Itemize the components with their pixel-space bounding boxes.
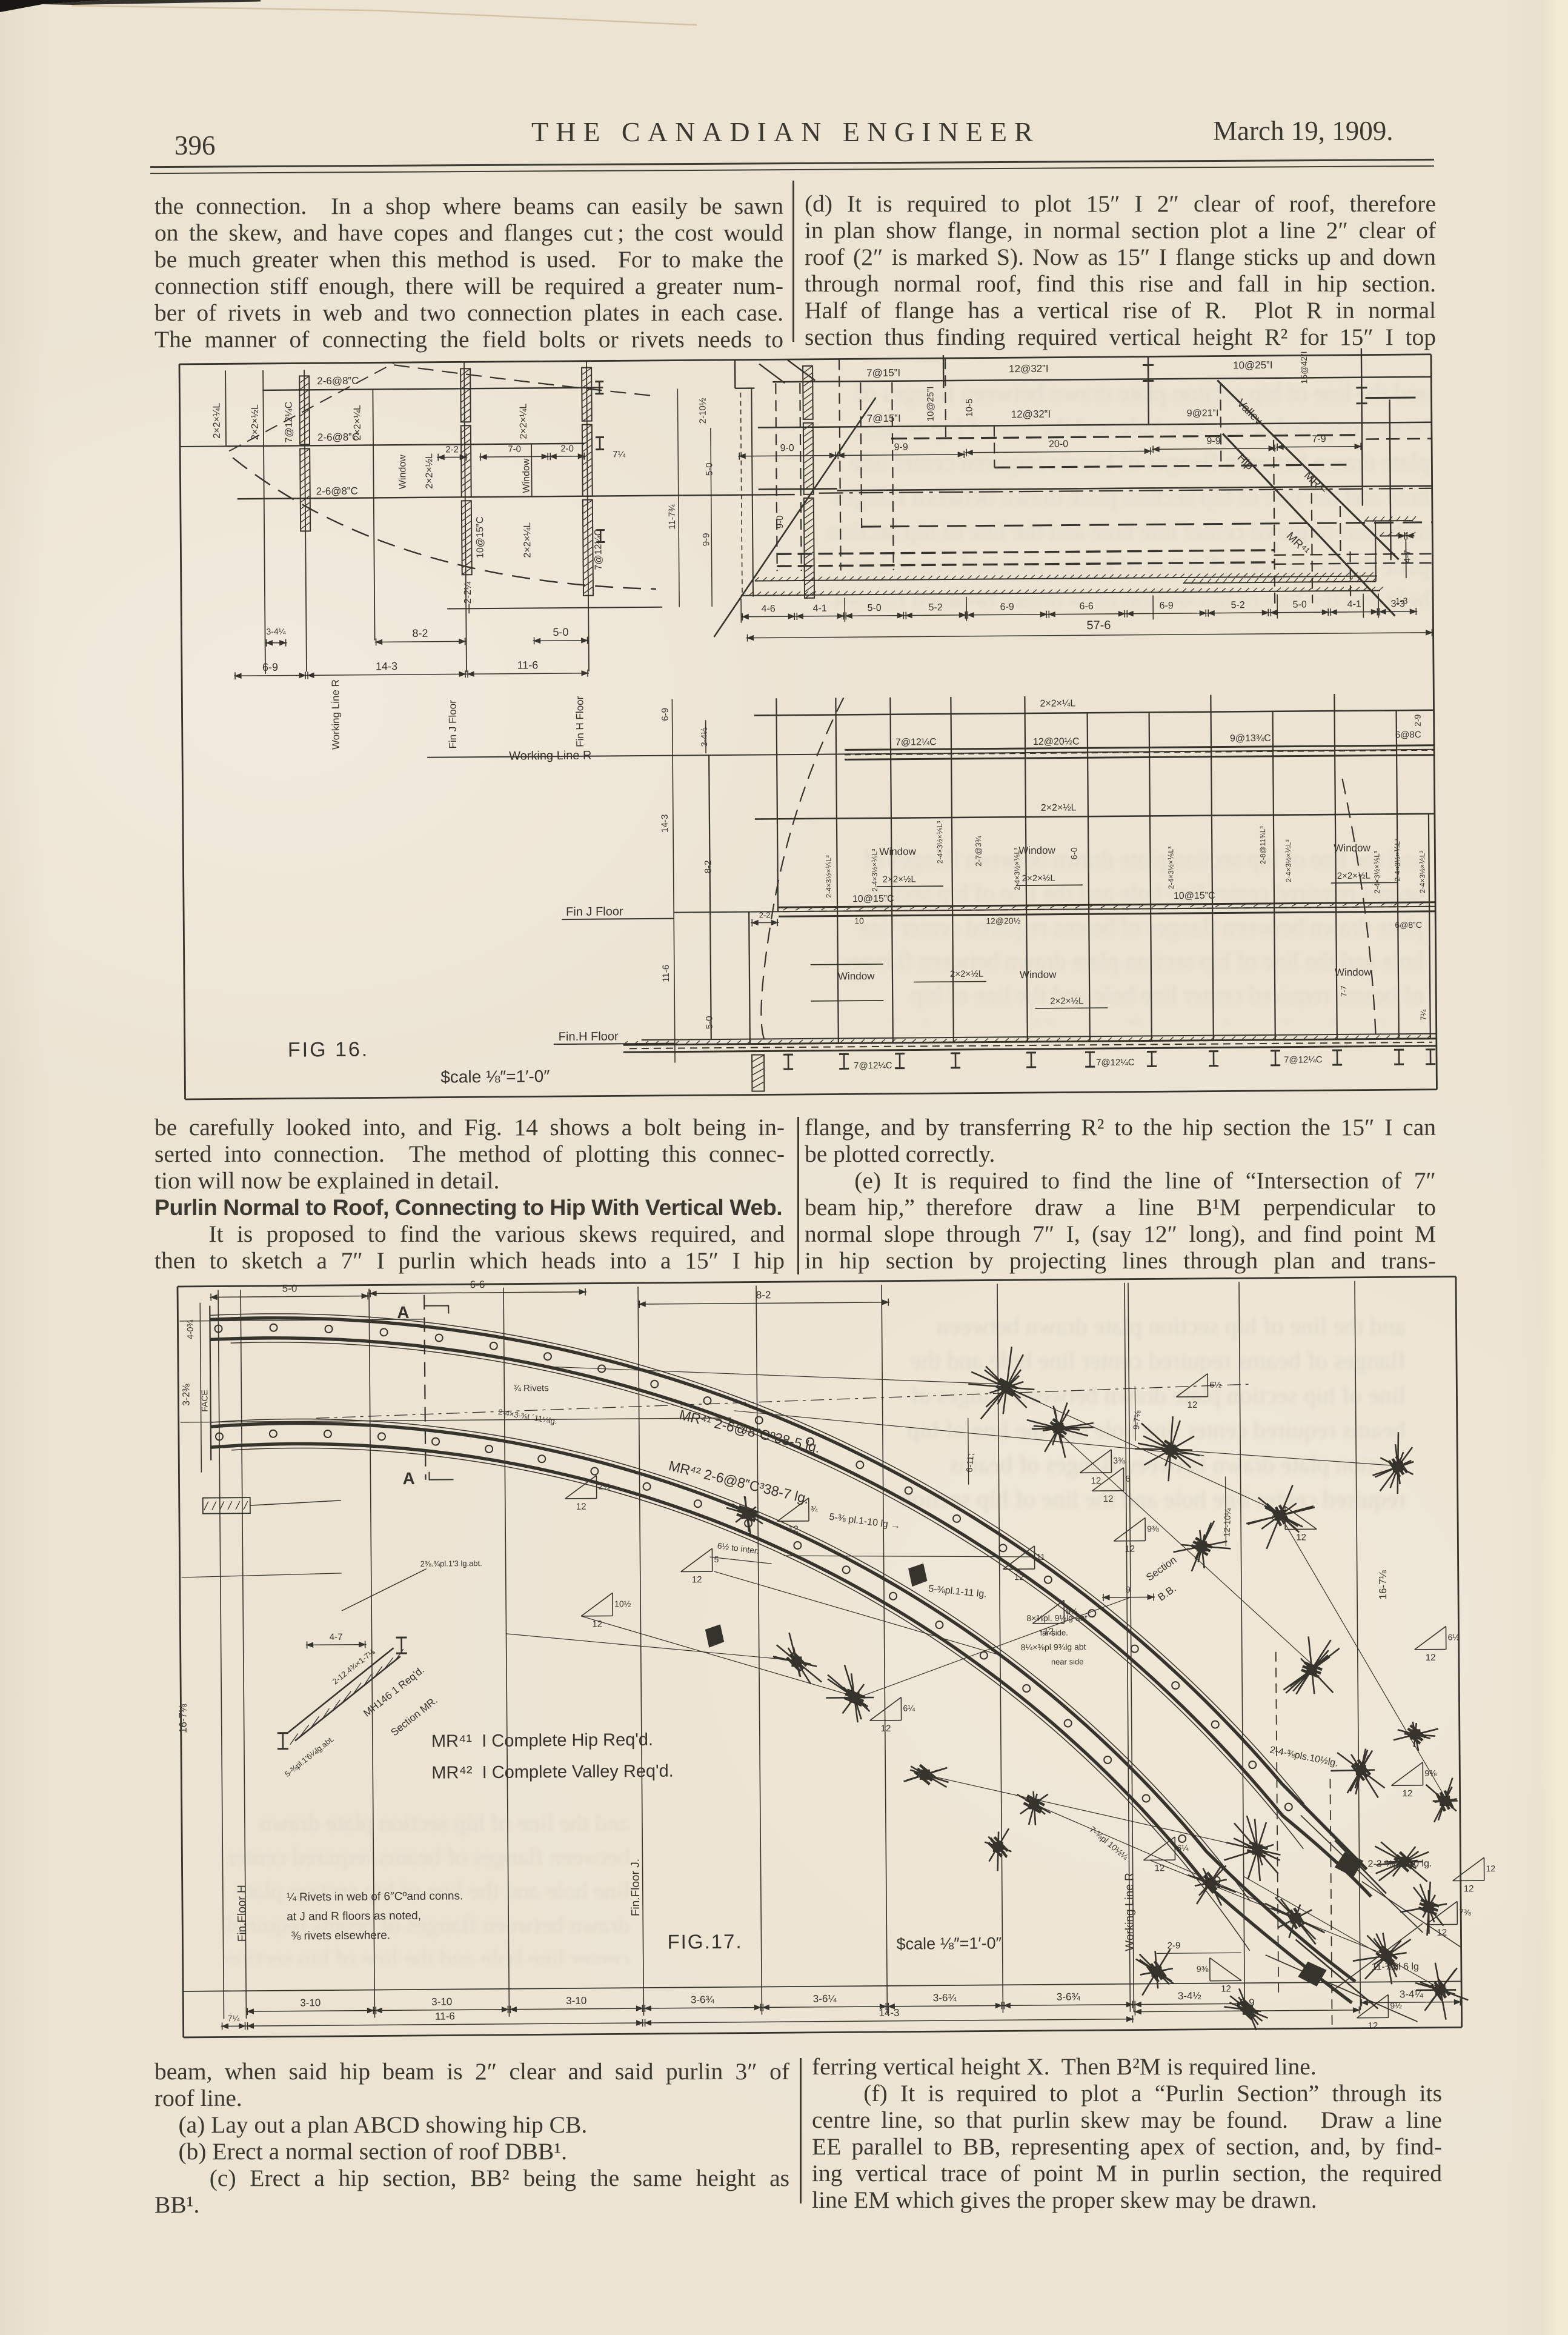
svg-text:3-10: 3-10 xyxy=(431,1996,452,2007)
svg-text:12: 12 xyxy=(1296,1532,1306,1542)
svg-text:2-4×3-⅜L´11¼lg.: 2-4×3-⅜L´11¼lg. xyxy=(497,1407,558,1426)
svg-text:2-4-⅜pls.10½lg.: 2-4-⅜pls.10½lg. xyxy=(1269,1745,1339,1769)
svg-text:12: 12 xyxy=(1426,1653,1436,1663)
svg-text:11-6: 11-6 xyxy=(435,2010,455,2022)
svg-text:2-3-⅜pls 10 lg.: 2-3-⅜pls 10 lg. xyxy=(1367,1859,1432,1870)
svg-text:2-9: 2-9 xyxy=(1168,1940,1181,1951)
svg-text:far side.: far side. xyxy=(1040,1628,1068,1637)
svg-text:12: 12 xyxy=(1014,1572,1025,1582)
svg-text:Fin.Floor H: Fin.Floor H xyxy=(236,1885,249,1942)
svg-text:3-6¾: 3-6¾ xyxy=(1057,1991,1081,2002)
svg-text:14-3: 14-3 xyxy=(879,2007,899,2019)
svg-text:at J and R floors as noted,: at J and R floors as noted, xyxy=(287,1910,421,1924)
svg-text:9⅜: 9⅜ xyxy=(1424,1768,1437,1778)
svg-text:¼ Rivets in web of 6″Cºand con: ¼ Rivets in web of 6″Cºand conns. xyxy=(287,1890,463,1904)
svg-text:5-0: 5-0 xyxy=(282,1282,297,1294)
svg-text:Working Line R: Working Line R xyxy=(1123,1873,1137,1951)
svg-text:6¼: 6¼ xyxy=(903,1703,915,1713)
svg-text:6½: 6½ xyxy=(1209,1379,1221,1389)
svg-text:9: 9 xyxy=(1126,1585,1131,1594)
svg-text:B.B.: B.B. xyxy=(1155,1582,1178,1603)
svg-text:7¼: 7¼ xyxy=(228,2013,240,2023)
svg-text:6-11⁏: 6-11⁏ xyxy=(964,1453,975,1473)
svg-text:10½: 10½ xyxy=(614,1599,631,1608)
svg-text:2½: 2½ xyxy=(599,1481,611,1491)
svg-text:$cale ⅛″=1′-0″: $cale ⅛″=1′-0″ xyxy=(896,1934,1002,1953)
svg-text:6¼: 6¼ xyxy=(1177,1843,1189,1853)
svg-text:16-7⅛: 16-7⅛ xyxy=(177,1704,188,1733)
svg-text:MR⁴² 2-6@8‟C³38-7 lg.: MR⁴² 2-6@8‟C³38-7 lg. xyxy=(667,1457,811,1507)
svg-text:9⅜: 9⅜ xyxy=(1147,1524,1159,1533)
svg-text:5-⅜pl.1-11 lg.: 5-⅜pl.1-11 lg. xyxy=(928,1584,988,1599)
svg-text:12: 12 xyxy=(592,1619,602,1630)
svg-text:Section: Section xyxy=(1144,1554,1178,1583)
svg-text:12: 12 xyxy=(1155,1863,1165,1873)
svg-text:11: 11 xyxy=(1036,1552,1045,1562)
svg-text:2⅜.¾pl.1'3 lg.abt.: 2⅜.¾pl.1'3 lg.abt. xyxy=(420,1559,482,1568)
svg-text:6: 6 xyxy=(1125,1474,1130,1484)
svg-text:Fin.Floor J.: Fin.Floor J. xyxy=(629,1859,642,1916)
svg-text:MR⁴¹ I Complete Hip Req'd.: MR⁴¹ I Complete Hip Req'd. xyxy=(431,1730,653,1751)
svg-text:12: 12 xyxy=(576,1502,586,1512)
svg-text:8-2: 8-2 xyxy=(756,1289,771,1301)
svg-text:6-6: 6-6 xyxy=(470,1279,485,1290)
svg-text:3-6¾: 3-6¾ xyxy=(933,1992,957,2004)
svg-text:12: 12 xyxy=(1103,1494,1114,1504)
svg-text:A: A xyxy=(402,1469,414,1488)
svg-text:6-9: 6-9 xyxy=(1240,1997,1255,2008)
svg-text:3⅜: 3⅜ xyxy=(1113,1456,1125,1465)
svg-text:near side: near side xyxy=(1051,1657,1084,1666)
svg-text:FIG.17.: FIG.17. xyxy=(667,1930,742,1953)
svg-text:¾: ¾ xyxy=(811,1504,818,1514)
svg-text:12: 12 xyxy=(1221,1984,1231,1994)
svg-text:4-7: 4-7 xyxy=(330,1632,343,1642)
svg-text:⅜ rivets elsewhere.: ⅜ rivets elsewhere. xyxy=(291,1929,390,1942)
svg-text:FACE: FACE xyxy=(199,1390,209,1412)
svg-text:9⅜: 9⅜ xyxy=(1197,1964,1209,1974)
svg-text:12: 12 xyxy=(1486,1864,1496,1873)
svg-text:6½: 6½ xyxy=(1272,1513,1284,1522)
svg-text:¾ Rivets: ¾ Rivets xyxy=(513,1383,548,1393)
svg-text:12: 12 xyxy=(1403,1788,1413,1799)
svg-text:12: 12 xyxy=(881,1724,891,1734)
svg-text:3-2⅜: 3-2⅜ xyxy=(181,1384,191,1406)
svg-text:6½ to inter.: 6½ to inter. xyxy=(717,1541,760,1556)
svg-text:MR⁴² I Complete Valley Req'd.: MR⁴² I Complete Valley Req'd. xyxy=(431,1762,674,1783)
svg-text:12: 12 xyxy=(1188,1400,1198,1410)
svg-text:3-6¼: 3-6¼ xyxy=(813,1993,837,2004)
svg-text:3-10: 3-10 xyxy=(300,1997,321,2008)
svg-text:12: 12 xyxy=(1368,2020,1378,2031)
svg-text:12: 12 xyxy=(1125,1544,1135,1554)
svg-text:5: 5 xyxy=(714,1554,719,1564)
svg-text:5-⅜pl.1'6¼lg.abt.: 5-⅜pl.1'6¼lg.abt. xyxy=(283,1734,336,1779)
svg-text:12: 12 xyxy=(1091,1476,1101,1486)
svg-text:3-6¾: 3-6¾ xyxy=(691,1994,715,2005)
svg-text:9-7⅛: 9-7⅛ xyxy=(1131,1410,1143,1430)
svg-text:12-10¼: 12-10¼ xyxy=(1221,1508,1232,1537)
svg-text:12: 12 xyxy=(1437,1928,1447,1938)
svg-text:6½: 6½ xyxy=(1448,1632,1460,1642)
svg-text:3-4¼: 3-4¼ xyxy=(1400,1988,1424,2000)
svg-text:3-4½: 3-4½ xyxy=(1178,1990,1201,2002)
svg-text:12: 12 xyxy=(1464,1884,1474,1894)
svg-text:4-0¾: 4-0¾ xyxy=(185,1320,194,1339)
svg-text:8¼×⅜pl 9¾lg abt: 8¼×⅜pl 9¾lg abt xyxy=(1021,1642,1086,1652)
svg-text:7⅜: 7⅜ xyxy=(1459,1907,1471,1917)
svg-text:8×⅜pl. 9¼lg abt: 8×⅜pl. 9¼lg abt xyxy=(1026,1613,1087,1623)
svg-text:3-10: 3-10 xyxy=(566,1995,586,2007)
svg-text:16-7⅛: 16-7⅛ xyxy=(1377,1570,1389,1599)
svg-text:11-⅜pl 6 lg: 11-⅜pl 6 lg xyxy=(1372,1962,1419,1973)
svg-text:MR⁴¹ 2-6@8‟Cº38-5 lg.: MR⁴¹ 2-6@8‟Cº38-5 lg. xyxy=(678,1407,822,1456)
svg-text:5-⅜ pl.1-10 lg →: 5-⅜ pl.1-10 lg → xyxy=(829,1512,901,1531)
svg-text:12: 12 xyxy=(788,1524,799,1534)
svg-text:12: 12 xyxy=(692,1574,702,1585)
